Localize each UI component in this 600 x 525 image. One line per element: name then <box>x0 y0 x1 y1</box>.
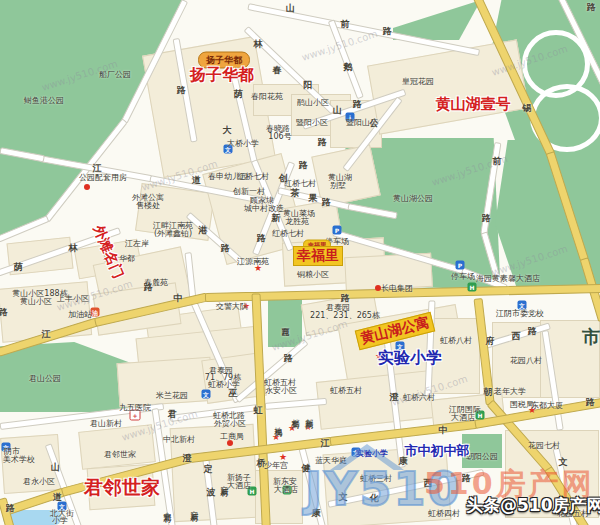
star-icon: ★ <box>272 433 280 442</box>
road-name-label: 鹅 <box>344 61 353 74</box>
poi-label: 外贸小区 <box>214 418 246 429</box>
estate-label: 实验小学 <box>378 348 442 369</box>
poi-label: 美术学校 <box>3 454 35 465</box>
estate-label: 扬子华都 <box>190 65 254 86</box>
dot-icon <box>84 184 90 190</box>
poi-label: 米兰花园 <box>156 390 188 401</box>
p-icon: P <box>333 226 342 235</box>
poi-label: 百花园 <box>279 321 290 324</box>
road-name-label: 春 <box>273 64 282 77</box>
road-name-label: 澄 <box>183 452 192 465</box>
road-name-label: 路 <box>383 25 392 38</box>
road-name-label: 朝 <box>484 386 493 399</box>
school-icon: 文 <box>202 390 211 399</box>
poi-label: 定波新村 <box>218 479 229 483</box>
poi-label: 106号 <box>268 131 291 142</box>
poi-label: 少年宫 <box>264 460 288 471</box>
road-name-label: 茶 <box>291 187 300 200</box>
road-name-label: 路 <box>586 396 595 409</box>
road-name-label: 路 <box>299 159 308 172</box>
road-name-label: 虹 <box>254 404 263 417</box>
road-name-label: 前 <box>341 18 350 31</box>
poi-label: 小学 <box>52 515 68 525</box>
poi-label: 红桥七村 <box>284 178 316 189</box>
poi-label: (外滩鑫铂) <box>154 228 192 239</box>
estate-label: 君邻世家 <box>84 475 160 501</box>
poi-label: 邮政局 <box>303 413 314 416</box>
road-name-label: 林 <box>69 242 78 255</box>
poi-label: 别墅 <box>330 180 346 191</box>
road-name-label: 路 <box>341 292 350 305</box>
poi-label: 大酒店 <box>274 484 298 495</box>
poi-label: 地税局 <box>272 421 283 424</box>
poi-label: 红桥七村 <box>272 228 304 239</box>
road-name-label: 波 <box>207 486 216 499</box>
poi-label: 君邻世家 <box>104 449 136 460</box>
estate-label: 市中初中部 <box>405 442 470 460</box>
poi-label: 黄山小区 <box>20 296 52 307</box>
road-name-label: 创 <box>279 172 288 185</box>
watermark-toutiao-handle: 头条@510房产网 <box>466 494 600 517</box>
road-name-label: 道 <box>53 491 62 504</box>
road-name-label: 大 <box>223 124 232 137</box>
road-name-label: 路 <box>322 196 331 209</box>
estate-label: 幸福里 <box>293 246 343 266</box>
star-icon: ★ <box>288 424 296 433</box>
poi-label: 长电集团 <box>381 283 413 294</box>
poi-label: 定波新村 <box>188 504 199 508</box>
poi-label: 春阳花苑 <box>251 91 283 102</box>
road-name-label: 府 <box>486 335 495 348</box>
star-icon: ★ <box>304 423 312 432</box>
poi-label: 君山新村 <box>90 418 122 429</box>
road-name-label: 路 <box>587 1 596 14</box>
poi-label: 鹃山小区 <box>297 97 329 108</box>
road-name-label: 中 <box>439 424 448 437</box>
road-name-label: 港 <box>199 224 208 237</box>
road-name-label: 路 <box>318 136 327 149</box>
road-name-label: 阳 <box>304 79 313 92</box>
road-name-label: 路 <box>353 98 362 111</box>
poi-label: 君永小区 <box>23 476 55 487</box>
road-name-label: 林 <box>254 38 263 51</box>
poi-label: 黄山湖公园 <box>393 193 433 204</box>
poi-label: 朝阳公园 <box>466 451 498 462</box>
poi-label: 龙胜苑 <box>285 216 309 227</box>
road-name-label: 新 <box>272 212 281 225</box>
poi-label: 虹桥五村 <box>330 385 362 396</box>
road-name-label: 果 <box>309 192 318 205</box>
road-name-label: 巫 <box>229 387 238 400</box>
poi-label: 公园配套用房 <box>79 172 127 183</box>
road-name-label: 西 <box>512 330 521 343</box>
poi-label: 中北新村 <box>163 434 195 445</box>
poi-label: 江左岸 <box>125 238 149 249</box>
road-name-label: 锡 <box>523 102 532 115</box>
poi-label: 花园七村 <box>528 440 560 451</box>
road-name-label: 江 <box>42 328 51 341</box>
road-name-label: 公 <box>370 117 379 130</box>
road-name-label: 路 <box>6 502 15 515</box>
map-image: 船厂公园鲥鱼港公园春阳花苑鹃山小区暨阳小区暨阳山庄春晓路106号大桥小学皇冠花园… <box>0 0 600 525</box>
poi-label: 九五医院 <box>119 402 151 413</box>
road-name-label: 路 <box>177 84 186 97</box>
poi-label: 售楼处 <box>136 200 160 211</box>
park-shape <box>0 342 135 412</box>
road-name-label: 路 <box>0 306 8 319</box>
poi-label: 铜粮小区 <box>297 269 329 280</box>
road-name-label: 江 <box>321 437 330 450</box>
poi-label: 大酒店 <box>227 480 251 491</box>
road-name-label: 荫 <box>14 261 23 274</box>
poi-label: 花园八村 <box>510 355 542 366</box>
poi-label: 江阴市委党校 <box>496 308 544 319</box>
road-name-label: 路 <box>221 242 230 255</box>
road-name-label: 路 <box>257 232 266 245</box>
poi-label: 中北新村 <box>161 505 172 509</box>
road-name-label: 山 <box>286 2 295 15</box>
road-name-label: 荫 <box>234 88 243 101</box>
poi-label: 大酒店 <box>451 412 475 423</box>
poi-label: 暨阳小区 <box>296 117 328 128</box>
road-name-label: 路 <box>528 325 537 338</box>
poi-label: 停车场 <box>451 271 475 282</box>
poi-label: 老年大学 <box>494 386 526 397</box>
road-name-label: 山 <box>333 104 342 117</box>
poi-label: 虹桥八村 <box>440 335 472 346</box>
poi-label: 皇冠花园 <box>402 76 434 87</box>
road-name-label: 定 <box>204 463 213 476</box>
road-name-label: 路 <box>284 352 293 365</box>
poi-label: 大桥小学 <box>227 138 259 149</box>
road-name-label: 桥 <box>257 457 266 470</box>
poi-label: 档案局 <box>289 413 300 416</box>
poi-label: 红桥七村 <box>237 171 269 182</box>
estate-label: 黄山湖壹号 <box>436 95 511 114</box>
road-name-label: 路 <box>482 212 491 225</box>
road-name-label: 路 <box>144 281 153 294</box>
road-name-label: 江 <box>93 162 102 175</box>
poi-label: 江源南苑 <box>237 256 269 267</box>
hotel-icon: H <box>468 283 477 292</box>
poi-label: 交警大队 <box>216 301 248 312</box>
poi-label: 加油站 <box>68 309 92 320</box>
poi-label: 君山公园 <box>29 373 61 384</box>
p-icon: P <box>456 261 465 270</box>
poi-label: 海园黄素馨大酒店 <box>476 273 540 284</box>
poi-label: 工商局 <box>220 431 244 442</box>
road-name-label: 山 <box>51 461 60 474</box>
poi-label: 市 <box>582 325 600 349</box>
road-name-label: 中 <box>174 292 183 305</box>
poi-label: 东都大厦 <box>531 400 563 411</box>
poi-label: 永安小区 <box>265 385 297 396</box>
poi-label: 鲥鱼港公园 <box>24 95 64 106</box>
